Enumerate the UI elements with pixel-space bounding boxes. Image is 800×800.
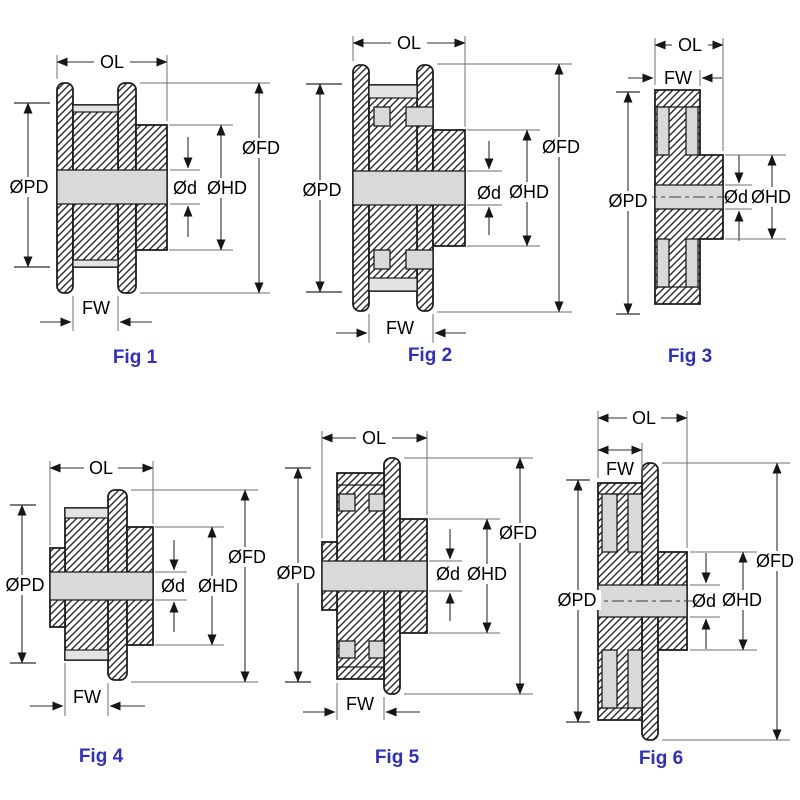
fig6-d-dimension: Ød xyxy=(690,553,720,649)
fig4-fd-label: ØFD xyxy=(228,547,266,567)
figure-2: OL ØPD ØFD ØHD Ød xyxy=(298,33,585,366)
fig5-pd-label: ØPD xyxy=(276,563,315,583)
fig1-ol-label: OL xyxy=(100,52,124,72)
fig3-d-label: Ød xyxy=(724,187,748,207)
fig4-caption: Fig 4 xyxy=(79,746,124,767)
fig5-pd-dimension: ØPD xyxy=(272,468,320,682)
fig5-hd-label: ØHD xyxy=(467,564,507,584)
fig1-pd-dimension: ØPD xyxy=(5,103,53,267)
fig5-tooth-slot xyxy=(339,641,355,658)
figure-3: OL FW ØPD Ød ØHD Fig 3 xyxy=(604,35,795,367)
fig2-bottom-belt-land xyxy=(369,278,417,291)
fig5-d-label: Ød xyxy=(436,564,460,584)
fig4-bore xyxy=(50,572,153,600)
fig5-pulley-cross-section xyxy=(322,458,427,694)
fig6-tooth-gap xyxy=(628,494,642,552)
fig6-tooth-gap xyxy=(628,650,642,708)
fig1-bottom-belt-land xyxy=(73,260,118,267)
fig5-tooth-slot xyxy=(369,494,384,511)
fig4-d-dimension: Ød xyxy=(155,540,187,632)
fig1-bore xyxy=(57,170,167,204)
fig2-pd-label: ØPD xyxy=(302,180,341,200)
fig1-fw-dimension: FW xyxy=(40,296,152,331)
fig2-fw-dimension: FW xyxy=(336,314,466,343)
fig5-caption: Fig 5 xyxy=(375,747,420,768)
fig3-pd-dimension: ØPD xyxy=(604,92,652,314)
fig5-d-dimension: Ød xyxy=(429,529,462,621)
fig4-bottom-belt-land xyxy=(65,650,108,660)
fig3-d-dimension: Ød xyxy=(724,155,752,241)
pulley-diagram-page: OL ØPD ØFD ØHD Ød xyxy=(0,0,800,800)
fig5-fw-label: FW xyxy=(346,694,374,714)
fig1-d-dimension: Ød xyxy=(170,137,200,237)
fig2-d-dimension: Ød xyxy=(467,141,502,235)
fig4-hd-label: ØHD xyxy=(198,576,238,596)
fig6-d-label: Ød xyxy=(692,591,716,611)
fig6-tooth-gap xyxy=(602,650,617,708)
fig1-pulley-cross-section xyxy=(57,83,167,293)
fig5-bore xyxy=(322,561,427,591)
fig4-pd-label: ØPD xyxy=(5,575,44,595)
fig1-fd-label: ØFD xyxy=(242,138,280,158)
fig1-fw-label: FW xyxy=(82,298,110,318)
fig4-fw-label: FW xyxy=(73,687,101,707)
fig2-caption: Fig 2 xyxy=(408,345,452,366)
fig2-tooth-slot xyxy=(374,107,390,126)
fig1-pd-label: ØPD xyxy=(9,177,48,197)
figure-6: OL FW ØPD ØFD ØHD Ød xyxy=(553,408,799,769)
fig6-fw-label: FW xyxy=(606,459,634,479)
fig1-top-belt-land xyxy=(73,105,118,112)
fig2-pd-dimension: ØPD xyxy=(298,84,346,292)
fig6-pd-dimension: ØPD xyxy=(553,480,601,722)
fig6-fd-label: ØFD xyxy=(756,551,794,571)
fig3-hd-label: ØHD xyxy=(751,187,791,207)
pulley-diagram-canvas: OL ØPD ØFD ØHD Ød xyxy=(0,0,800,800)
fig6-ol-label: OL xyxy=(632,408,656,428)
fig1-caption: Fig 1 xyxy=(113,347,158,368)
fig2-bore xyxy=(353,171,465,205)
fig2-ol-label: OL xyxy=(397,33,421,53)
fig4-d-label: Ød xyxy=(161,576,185,596)
fig2-tooth-slot xyxy=(374,250,390,269)
fig3-caption: Fig 3 xyxy=(668,346,712,367)
fig6-hd-label: ØHD xyxy=(722,590,762,610)
fig3-tooth-gap xyxy=(686,239,698,287)
figure-1: OL ØPD ØFD ØHD Ød xyxy=(5,52,285,368)
fig2-hd-label: ØHD xyxy=(509,182,549,202)
fig6-caption: Fig 6 xyxy=(639,748,683,769)
fig2-tooth-slot xyxy=(406,107,433,126)
fig6-tooth-gap xyxy=(602,494,617,552)
fig3-pulley-cross-section xyxy=(645,90,733,304)
fig5-fw-dimension: FW xyxy=(303,683,420,720)
fig6-pd-label: ØPD xyxy=(557,590,596,610)
fig3-fw-label: FW xyxy=(664,68,692,88)
fig2-fw-label: FW xyxy=(386,318,414,338)
figure-4: OL ØPD ØFD ØHD Ød xyxy=(1,458,271,767)
fig2-d-label: Ød xyxy=(477,183,501,203)
fig1-d-label: Ød xyxy=(173,178,197,198)
fig5-tooth-slot xyxy=(369,641,384,658)
fig4-top-belt-land xyxy=(65,508,108,518)
figure-5: OL ØPD ØFD ØHD Ød xyxy=(272,428,542,768)
fig6-fw-dimension: FW xyxy=(598,443,642,479)
fig3-fw-dimension: FW xyxy=(628,68,722,88)
fig5-tooth-slot xyxy=(339,494,355,511)
fig6-pulley-cross-section xyxy=(588,463,697,740)
fig2-top-belt-land xyxy=(369,85,417,98)
fig2-fd-label: ØFD xyxy=(542,137,580,157)
fig2-pulley-cross-section xyxy=(353,65,465,311)
fig3-tooth-gap xyxy=(657,239,669,287)
fig3-tooth-gap xyxy=(686,107,698,155)
fig2-tooth-slot xyxy=(406,250,433,269)
fig3-tooth-gap xyxy=(657,107,669,155)
fig5-fd-label: ØFD xyxy=(499,523,537,543)
fig1-hd-label: ØHD xyxy=(207,178,247,198)
fig3-pd-label: ØPD xyxy=(608,191,647,211)
fig5-ol-label: OL xyxy=(362,428,386,448)
fig4-pd-dimension: ØPD xyxy=(1,505,49,663)
fig3-ol-label: OL xyxy=(678,35,702,55)
fig4-pulley-cross-section xyxy=(50,490,153,680)
fig4-ol-label: OL xyxy=(89,458,113,478)
